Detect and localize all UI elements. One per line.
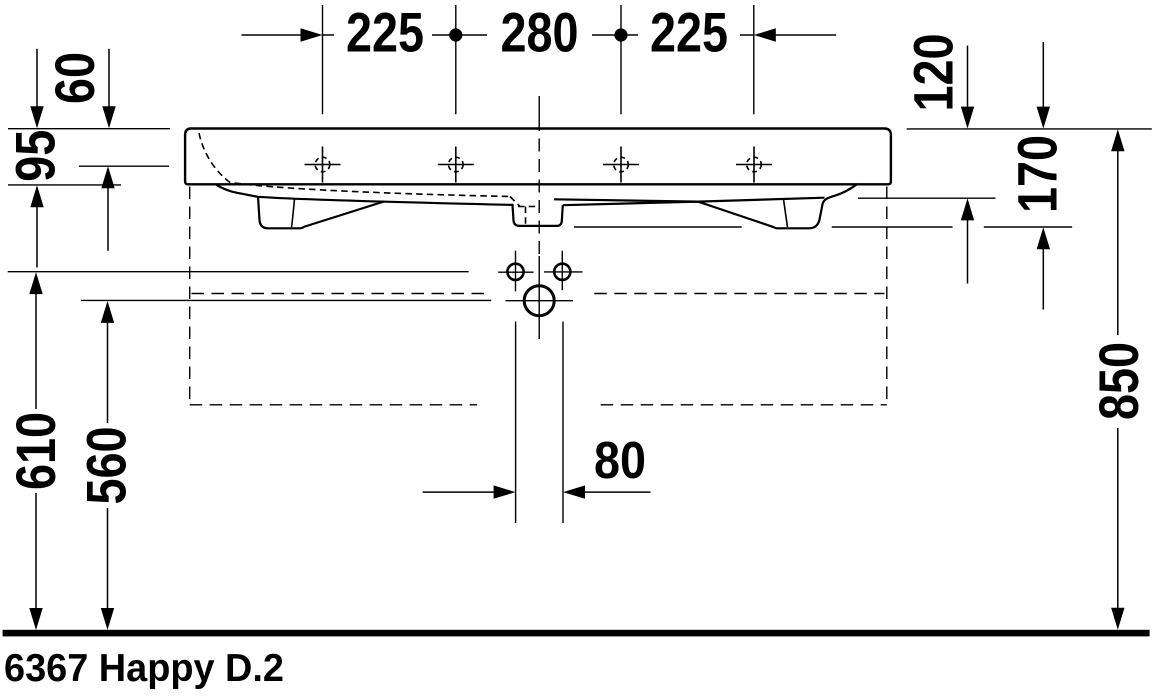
svg-text:170: 170 — [1006, 135, 1069, 213]
svg-text:120: 120 — [902, 34, 965, 112]
svg-text:225: 225 — [346, 1, 424, 64]
svg-text:850: 850 — [1087, 342, 1150, 420]
svg-text:560: 560 — [75, 427, 138, 505]
svg-text:60: 60 — [43, 52, 106, 104]
svg-text:610: 610 — [4, 412, 67, 490]
svg-text:6367 Happy D.2: 6367 Happy D.2 — [4, 647, 284, 690]
svg-text:280: 280 — [501, 1, 579, 64]
svg-text:95: 95 — [4, 130, 67, 182]
svg-text:80: 80 — [594, 432, 646, 490]
svg-text:225: 225 — [650, 1, 728, 64]
